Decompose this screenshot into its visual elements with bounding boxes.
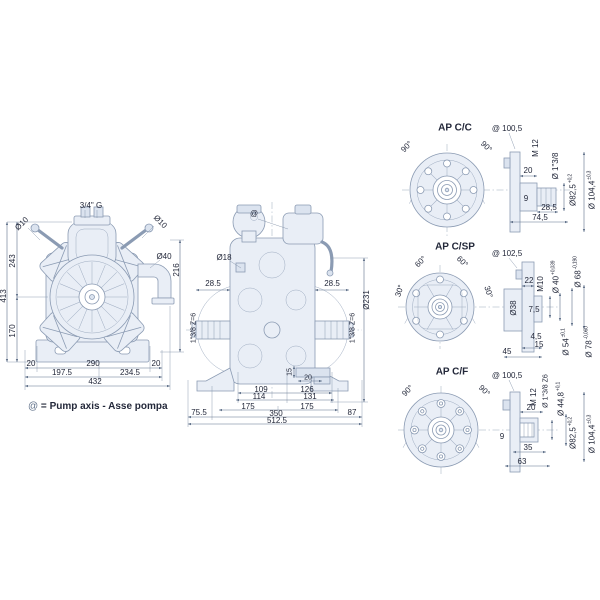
legend-equals: = — [38, 401, 49, 412]
flange-cc-title: AP C/C — [438, 123, 472, 134]
pump-axis-legend: @ = Pump axis - Asse pompa — [28, 401, 168, 412]
flange-cc-drawing — [402, 133, 584, 236]
legend-text: Pump axis - Asse pompa — [50, 401, 168, 412]
pump-drawing-canvas — [0, 0, 600, 600]
pump-axis-symbol: @ — [28, 401, 38, 412]
side-view-drawing — [186, 202, 368, 427]
flange-cf-title: AP C/F — [436, 367, 469, 378]
flange-cf-drawing — [398, 380, 584, 476]
flange-csp-drawing — [398, 258, 584, 357]
flange-csp-title: AP C/SP — [435, 242, 475, 253]
front-view-drawing — [7, 207, 184, 390]
technical-drawing-page: 3/4" GØ10Ø10Ø402164132431702029020197.52… — [0, 0, 600, 600]
